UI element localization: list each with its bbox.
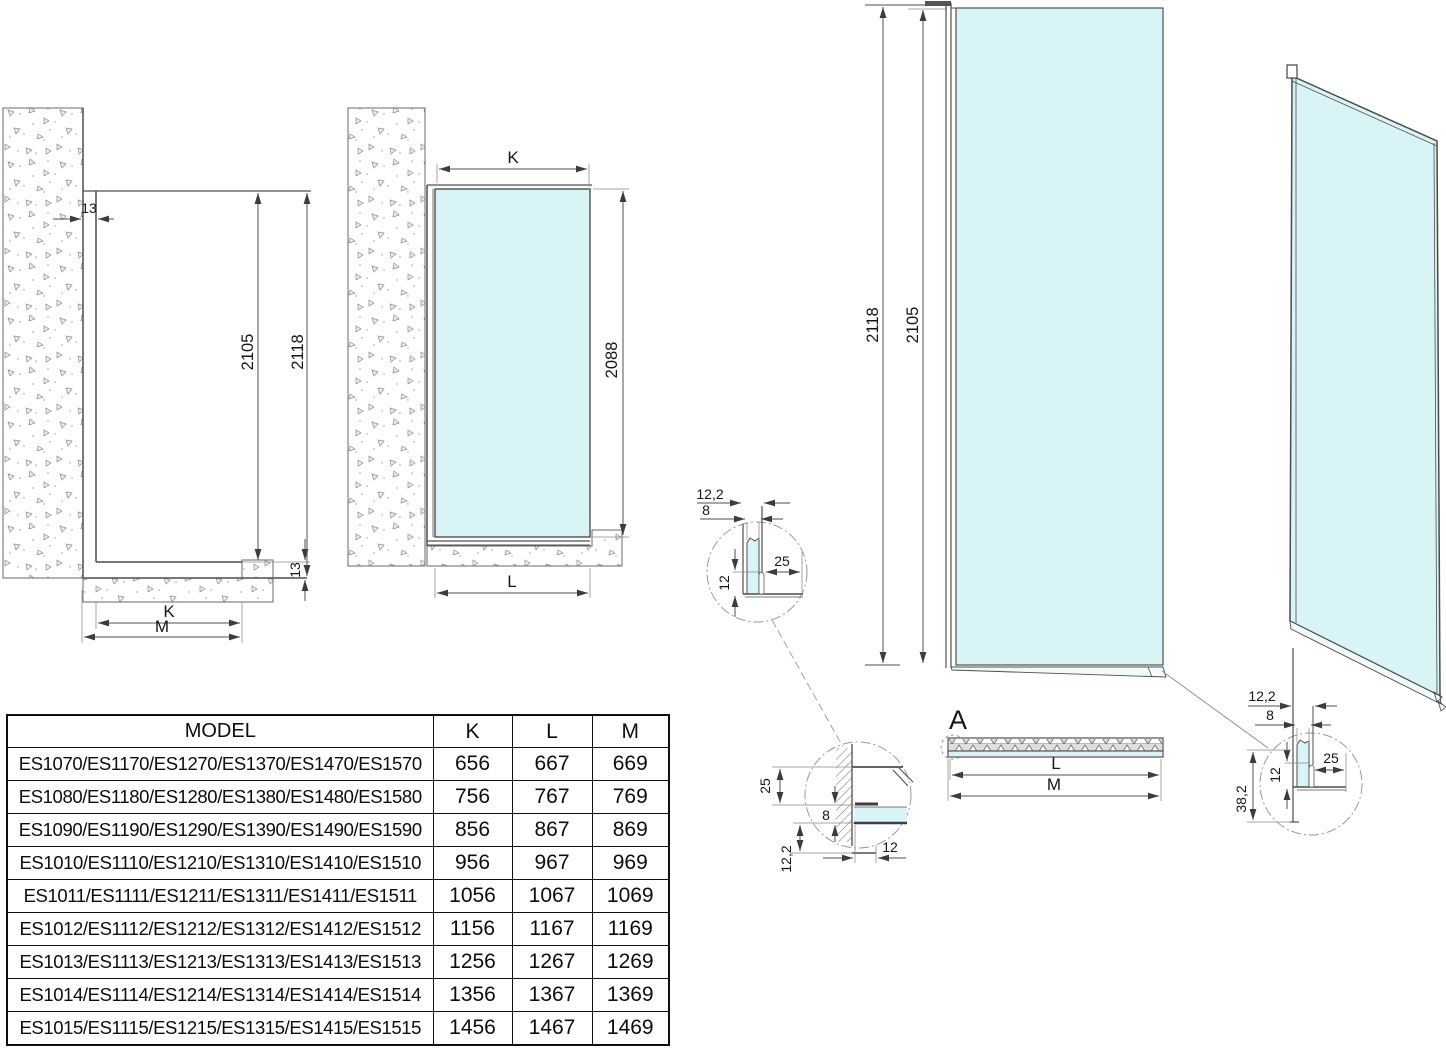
l-cell: 1067	[512, 880, 592, 913]
m-cell: 1169	[592, 913, 669, 946]
k-cell: 956	[433, 847, 512, 880]
model-cell: ES1080/ES1180/ES1280/ES1380/ES1480/ES158…	[7, 781, 433, 814]
model-cell: ES1014/ES1114/ES1214/ES1314/ES1414/ES151…	[7, 979, 433, 1012]
header-k: K	[433, 715, 512, 748]
detail-corner-profile: 12,2 8 25 12 38,2	[1233, 648, 1362, 835]
wall-section-view: 13 2105 2118 13 K M	[3, 108, 311, 643]
m-cell: 869	[592, 814, 669, 847]
glass-panel	[956, 8, 1163, 665]
table-row: ES1012/ES1112/ES1212/ES1312/ES1412/ES151…	[7, 913, 669, 946]
detail-bottom-profile: 12,2 8 25 12	[696, 486, 843, 747]
table-row: ES1014/ES1114/ES1214/ES1314/ES1414/ES151…	[7, 979, 669, 1012]
wall-bracket-3d	[1287, 65, 1297, 78]
dim-profile-width: 12,2	[778, 845, 794, 872]
table-row: ES1090/ES1190/ES1290/ES1390/ES1490/ES159…	[7, 814, 669, 847]
l-cell: 1467	[512, 1012, 592, 1046]
dim-profile-width: 12,2	[1248, 688, 1275, 704]
m-cell: 769	[592, 781, 669, 814]
dim-profile-width: 12,2	[696, 486, 723, 502]
wall-hatch-area	[3, 108, 83, 578]
panel-perspective-view	[1287, 65, 1446, 711]
dim-glass-thickness: 8	[822, 807, 830, 823]
model-cell: ES1011/ES1111/ES1211/ES1311/ES1411/ES151…	[7, 880, 433, 913]
table-row: ES1080/ES1180/ES1280/ES1380/ES1480/ES158…	[7, 781, 669, 814]
header-m: M	[592, 715, 669, 748]
k-cell: 856	[433, 814, 512, 847]
table-row: ES1013/ES1113/ES1213/ES1313/ES1413/ES151…	[7, 946, 669, 979]
m-cell: 1069	[592, 880, 669, 913]
l-cell: 1167	[512, 913, 592, 946]
glass-section-view: K 2088 L	[348, 108, 629, 598]
floor-hatch-area	[83, 560, 273, 602]
l-cell: 967	[512, 847, 592, 880]
m-cell: 1469	[592, 1012, 669, 1046]
dim-glass-thickness: 8	[702, 502, 710, 518]
dim-foot-length: 25	[774, 553, 790, 569]
dim-length-l: L	[1051, 754, 1060, 773]
sealant-hatch	[949, 739, 1162, 751]
dim-glass-height: 2088	[603, 342, 621, 379]
dim-lip-height: 12	[716, 575, 732, 591]
k-cell: 756	[433, 781, 512, 814]
dim-floor-offset: 13	[287, 562, 303, 578]
glass-edge	[747, 538, 759, 594]
model-cell: ES1015/ES1115/ES1215/ES1315/ES1415/ES151…	[7, 1012, 433, 1046]
l-cell: 767	[512, 781, 592, 814]
dim-lip-height: 12	[1267, 767, 1283, 783]
l-cell: 867	[512, 814, 592, 847]
header-model: MODEL	[7, 715, 433, 748]
model-cell: ES1090/ES1190/ES1290/ES1390/ES1490/ES159…	[7, 814, 433, 847]
glass-panel	[435, 189, 590, 537]
models-table: MODEL K L M ES1070/ES1170/ES1270/ES1370/…	[6, 714, 670, 1046]
dim-outer-height: 2118	[864, 307, 882, 342]
technical-drawing-sheet: 13 2105 2118 13 K M K 2088 L	[0, 0, 1446, 1057]
table-row: ES1010/ES1110/ES1210/ES1310/ES1410/ES151…	[7, 847, 669, 880]
k-cell: 1456	[433, 1012, 512, 1046]
glass-panel-3d	[1290, 76, 1440, 696]
table-row: ES1070/ES1170/ES1270/ES1370/ES1470/ES157…	[7, 748, 669, 781]
detail-leader-line	[772, 620, 843, 747]
panel-plan-view: A L M	[941, 705, 1163, 801]
detail-wall-profile: 25 8 12,2 12	[757, 742, 913, 873]
l-cell: 1367	[512, 979, 592, 1012]
wall-hatch	[836, 748, 852, 842]
table-header-row: MODEL K L M	[7, 715, 669, 748]
panel-front-view: 2118 2105	[864, 1, 1268, 748]
m-cell: 1369	[592, 979, 669, 1012]
m-cell: 669	[592, 748, 669, 781]
model-cell: ES1070/ES1170/ES1270/ES1370/ES1470/ES157…	[7, 748, 433, 781]
dim-bracket-height: 38,2	[1233, 785, 1249, 812]
dim-outer-height: 2118	[289, 334, 307, 369]
table-row: ES1015/ES1115/ES1215/ES1315/ES1415/ES151…	[7, 1012, 669, 1046]
model-cell: ES1013/ES1113/ES1213/ES1313/ES1413/ES151…	[7, 946, 433, 979]
dim-wall-offset: 13	[81, 200, 97, 216]
m-cell: 969	[592, 847, 669, 880]
dim-width-k: K	[507, 148, 519, 167]
k-cell: 1356	[433, 979, 512, 1012]
glass-edge	[1297, 740, 1309, 787]
model-cell: ES1010/ES1110/ES1210/ES1310/ES1410/ES151…	[7, 847, 433, 880]
dim-engagement: 12	[882, 839, 898, 855]
dim-profile-depth: 25	[757, 778, 773, 794]
seal-lip	[759, 572, 764, 594]
seal-lip	[1309, 765, 1314, 787]
wall-bracket-cap	[925, 1, 951, 6]
dim-width-l: L	[507, 572, 516, 591]
bottom-seal-strip	[951, 667, 1166, 677]
model-cell: ES1012/ES1112/ES1212/ES1312/ES1412/ES151…	[7, 913, 433, 946]
wall-hatch-area	[348, 108, 425, 566]
detail-circle	[805, 742, 911, 848]
dim-length-m: M	[1047, 775, 1061, 794]
k-cell: 1256	[433, 946, 512, 979]
detail-leader-line	[1162, 671, 1268, 748]
dim-inner-height: 2105	[904, 307, 922, 344]
header-l: L	[512, 715, 592, 748]
l-cell: 667	[512, 748, 592, 781]
k-cell: 1056	[433, 880, 512, 913]
dim-width-m: M	[155, 617, 169, 636]
l-cell: 1267	[512, 946, 592, 979]
models-table-wrapper: MODEL K L M ES1070/ES1170/ES1270/ES1370/…	[6, 714, 670, 1046]
dim-glass-thickness: 8	[1266, 707, 1274, 723]
dim-inner-height: 2105	[239, 334, 257, 371]
detail-label: A	[949, 705, 967, 735]
k-cell: 656	[433, 748, 512, 781]
table-row: ES1011/ES1111/ES1211/ES1311/ES1411/ES151…	[7, 880, 669, 913]
dim-foot-length: 25	[1323, 750, 1339, 766]
k-cell: 1156	[433, 913, 512, 946]
m-cell: 1269	[592, 946, 669, 979]
wall-profile	[946, 3, 951, 668]
glass-edge	[854, 807, 907, 822]
